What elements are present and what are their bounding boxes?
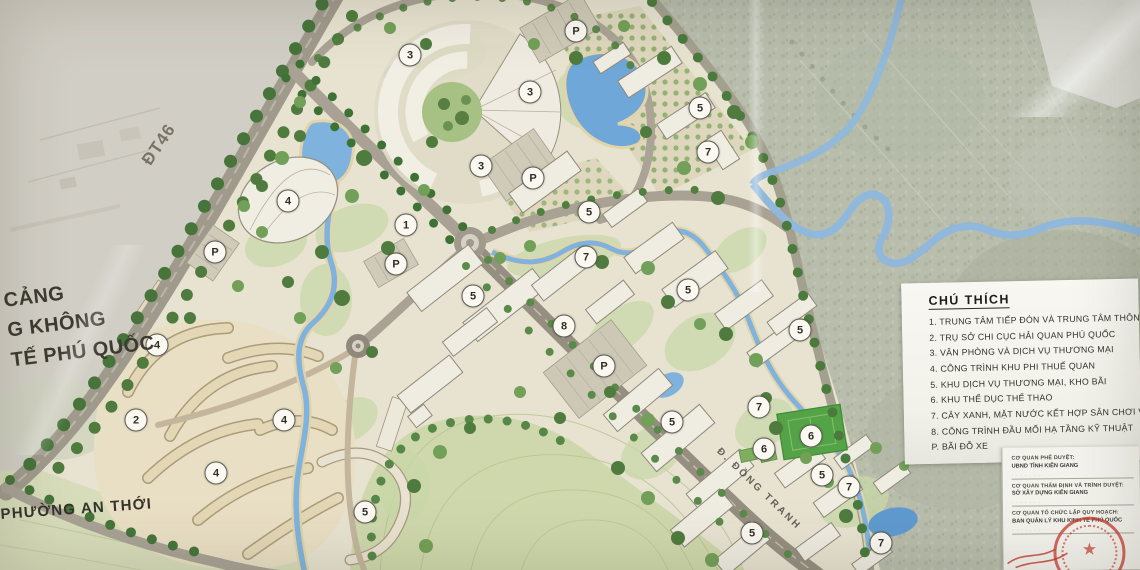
map-marker-2: 2 bbox=[125, 409, 148, 432]
legend-title: CHÚ THÍCH bbox=[928, 292, 1010, 310]
map-marker-p: P bbox=[522, 167, 545, 190]
title-block-row-label: CƠ QUAN THẨM ĐỊNH VÀ TRÌNH DUYỆT: bbox=[1012, 482, 1134, 489]
legend-items: 1. TRUNG TÂM TIẾP ĐÓN VÀ TRUNG TÂM THÔNG… bbox=[929, 311, 1140, 456]
legend-panel: CHÚ THÍCH 1. TRUNG TÂM TIẾP ĐÓN VÀ TRUNG… bbox=[901, 279, 1140, 465]
map-marker-7: 7 bbox=[575, 246, 598, 269]
map-marker-5: 5 bbox=[789, 319, 812, 342]
map-marker-7: 7 bbox=[697, 141, 720, 164]
map-marker-5: 5 bbox=[578, 201, 601, 224]
map-marker-4: 4 bbox=[205, 462, 228, 485]
site-plan-photo: 12333444455555555566777778PPPPP CẢNGG KH… bbox=[0, 0, 1140, 570]
signature-scrawl-icon bbox=[1003, 542, 1133, 569]
approval-title-block: CƠ QUAN PHÊ DUYỆT:UBND TỈNH KIÊN GIANGCƠ… bbox=[1001, 446, 1140, 570]
map-marker-3: 3 bbox=[470, 155, 493, 178]
map-marker-5: 5 bbox=[811, 464, 834, 487]
map-marker-3: 3 bbox=[399, 44, 422, 67]
title-block-row-label: CƠ QUAN PHÊ DUYỆT: bbox=[1011, 454, 1133, 461]
title-block-row-label: CƠ QUAN TỔ CHỨC LẬP QUY HOẠCH: bbox=[1012, 509, 1134, 516]
map-marker-7: 7 bbox=[748, 396, 771, 419]
map-marker-5: 5 bbox=[462, 285, 485, 308]
map-marker-4: 4 bbox=[277, 190, 300, 213]
map-marker-5: 5 bbox=[661, 411, 684, 434]
map-marker-3: 3 bbox=[519, 81, 542, 104]
title-block-row: CƠ QUAN THẨM ĐỊNH VÀ TRÌNH DUYỆT:SỞ XÂY … bbox=[1012, 480, 1134, 507]
title-block-row-value: SỞ XÂY DỰNG KIÊN GIANG bbox=[1012, 489, 1134, 496]
map-marker-5: 5 bbox=[354, 501, 377, 524]
map-marker-p: P bbox=[385, 253, 408, 276]
map-marker-p: P bbox=[565, 20, 588, 43]
map-marker-6: 6 bbox=[800, 425, 823, 448]
map-marker-p: P bbox=[593, 355, 616, 378]
map-marker-5: 5 bbox=[689, 97, 712, 120]
map-marker-7: 7 bbox=[838, 476, 861, 499]
map-marker-1: 1 bbox=[395, 214, 418, 237]
map-marker-5: 5 bbox=[677, 279, 700, 302]
map-marker-p: P bbox=[204, 241, 227, 264]
map-marker-6: 6 bbox=[753, 438, 776, 461]
map-marker-5: 5 bbox=[741, 522, 764, 545]
map-marker-4: 4 bbox=[273, 409, 296, 432]
title-block-row-value: UBND TỈNH KIÊN GIANG bbox=[1012, 462, 1134, 469]
map-marker-8: 8 bbox=[553, 315, 576, 338]
title-block-row: CƠ QUAN PHÊ DUYỆT:UBND TỈNH KIÊN GIANG bbox=[1011, 452, 1133, 479]
map-marker-7: 7 bbox=[870, 532, 893, 555]
airport-label: CẢNGG KHÔNGTẾ PHÚ QUỐC bbox=[2, 268, 156, 375]
